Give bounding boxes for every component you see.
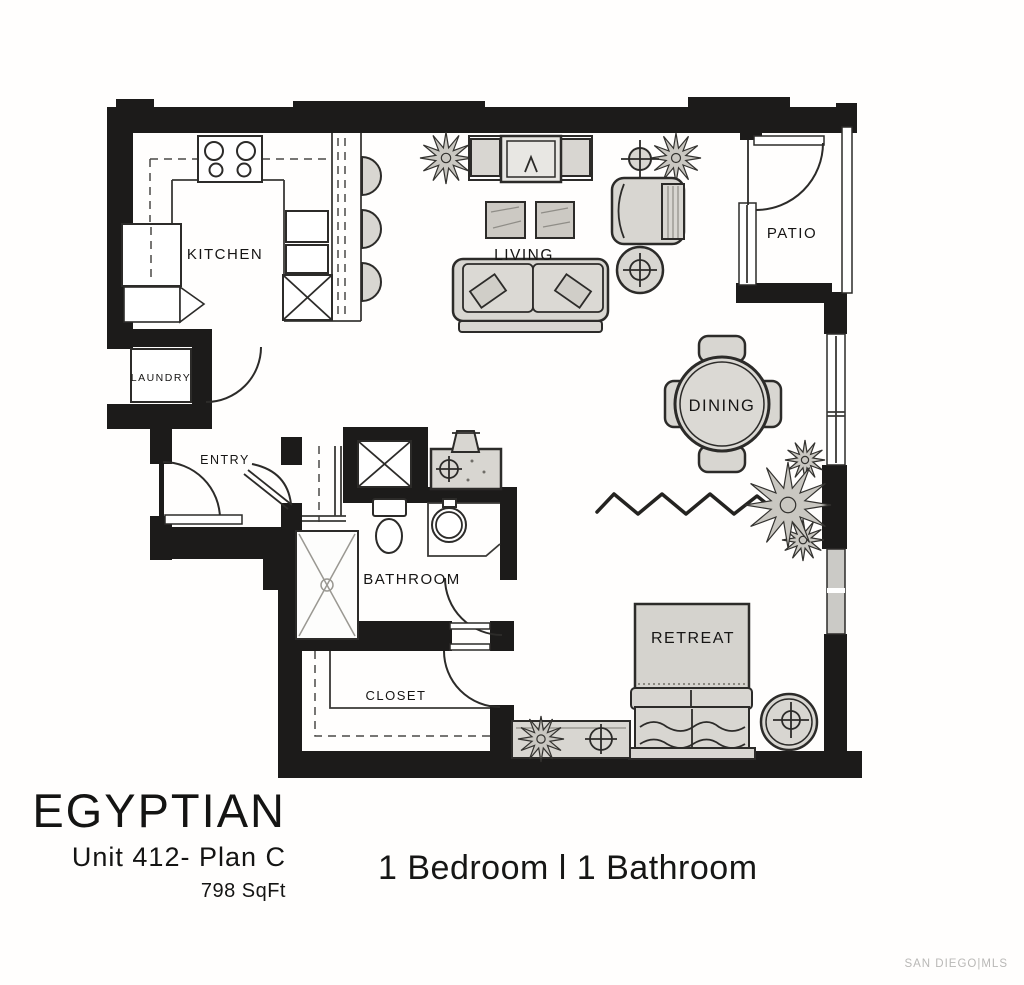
living-plant-left <box>420 132 472 184</box>
round-side-table <box>617 247 663 293</box>
ottoman-left <box>486 202 525 238</box>
floor-lamp <box>621 140 659 178</box>
entry-closet-door <box>244 464 292 509</box>
closet-door <box>444 651 500 707</box>
shower <box>296 531 358 639</box>
patio-railings <box>739 127 852 293</box>
pouf <box>761 694 817 750</box>
stove <box>198 136 262 182</box>
retreat-label: RETREAT <box>651 630 735 647</box>
tv-console <box>469 136 592 182</box>
closet-label: CLOSET <box>365 688 426 703</box>
dishwasher <box>283 275 332 320</box>
dining-label: DINING <box>689 397 756 415</box>
living-label: LIVING <box>494 247 554 264</box>
vase <box>452 431 480 452</box>
square-footage: 798 SqFt <box>28 880 286 903</box>
unit-number: Unit 412- Plan C <box>28 842 286 873</box>
mls-watermark: SAN DIEGO|MLS <box>904 958 1008 970</box>
bar-stools <box>362 157 381 301</box>
living-plant-right <box>651 133 701 183</box>
bathroom-sink <box>428 499 500 556</box>
plan-title-block: EGYPTIAN Unit 412- Plan C 798 SqFt <box>28 786 286 903</box>
sofa <box>453 259 608 332</box>
dining-plant-cluster <box>745 440 831 561</box>
toilet <box>373 499 406 553</box>
bedroom-bench <box>512 716 630 762</box>
patio-door <box>748 136 824 210</box>
kitchen-label: KITCHEN <box>187 246 263 263</box>
kitchen-sink-cabinets <box>286 211 328 273</box>
entry-door <box>159 462 242 524</box>
room-divider-zigzag <box>597 494 772 514</box>
armchair <box>612 178 684 244</box>
laundry-label: LAUNDRY <box>131 372 192 384</box>
corner-cabinet <box>124 287 204 322</box>
bathroom-label: BATHROOM <box>363 571 461 588</box>
linen-cabinet <box>358 441 411 487</box>
plan-name: EGYPTIAN <box>28 786 286 835</box>
entry-label: ENTRY <box>200 453 250 467</box>
ottoman-right <box>536 202 574 238</box>
bed <box>629 604 755 759</box>
console-table <box>431 449 501 489</box>
floor-plan-page: KITCHEN LAUNDRY ENTRY LIVING PATIO DININ… <box>0 0 1024 985</box>
bed-bath-configuration: 1 Bedroom l 1 Bathroom <box>378 849 758 888</box>
refrigerator <box>122 224 181 286</box>
entry-closet-rod <box>302 446 346 522</box>
patio-label: PATIO <box>767 225 817 242</box>
